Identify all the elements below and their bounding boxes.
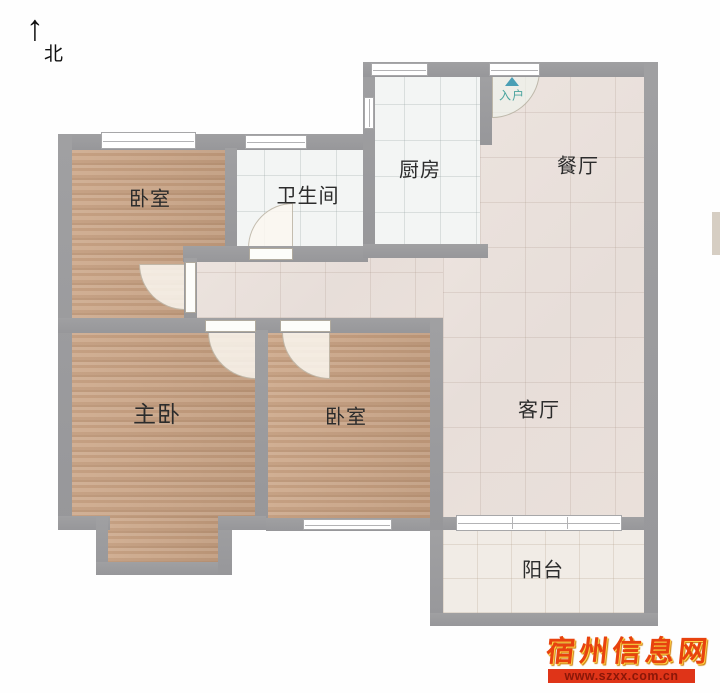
wall-east-outer [644,62,658,626]
wall-kitchen-south [363,244,488,258]
balcony-label: 阳台 [522,554,564,583]
bathroom-label: 卫生间 [277,180,340,209]
watermark-site-url: www.szxx.com.cn [548,669,695,683]
wall-balcony-west [430,530,443,626]
bedroom-mid-window [303,519,392,530]
bedroom-mid-label: 卧室 [325,401,367,430]
kitchen-window [371,63,428,76]
master-door-leaf [205,320,256,332]
master-bedroom-bay-floor [108,516,218,562]
sliding-door-divider [512,517,513,529]
wall-master-south-east [218,516,266,530]
living-west-floor [443,250,480,518]
bathroom-window [245,135,307,149]
dining-living-floor [480,77,646,518]
kitchen-side-window [364,97,374,129]
cropped-edge-fragment [712,212,720,255]
wall-master-bedroom-divider [255,330,268,518]
watermark-site-name: 宿州信息网 [544,638,712,667]
bathroom-door-leaf [249,248,293,260]
sliding-door-divider [567,517,568,529]
north-arrow-icon: ↑ [26,10,44,46]
wall-balcony-south [430,613,658,626]
living-label: 客厅 [518,394,560,423]
wall-entry-side [480,77,492,145]
wall-bedroom-living-divider [430,318,443,530]
bedroom-top-door-leaf [185,262,196,313]
dining-label: 餐厅 [557,150,599,179]
entry-direction-icon [505,77,519,86]
entry-label: 入户 [499,87,525,104]
balcony-sliding-door [456,515,622,531]
kitchen-label: 厨房 [399,154,441,183]
north-label: 北 [44,39,63,66]
bedroom-top-label: 卧室 [129,183,171,212]
wall-kitchen-west [363,62,375,248]
entry-door-panel [489,63,540,76]
bedroom-top-window [101,132,196,149]
wall-bay-south [96,562,232,575]
wall-bedroom-bathroom-divider [225,148,237,250]
master-bedroom-label: 主卧 [133,395,181,429]
hallway-floor [190,258,443,318]
bedroom-mid-door-leaf [280,320,331,332]
floor-plan: 入户 卧室 卫生间 厨房 餐厅 主卧 卧室 客厅 阳台 ↑ 北 宿州信息网 ww… [0,0,720,693]
